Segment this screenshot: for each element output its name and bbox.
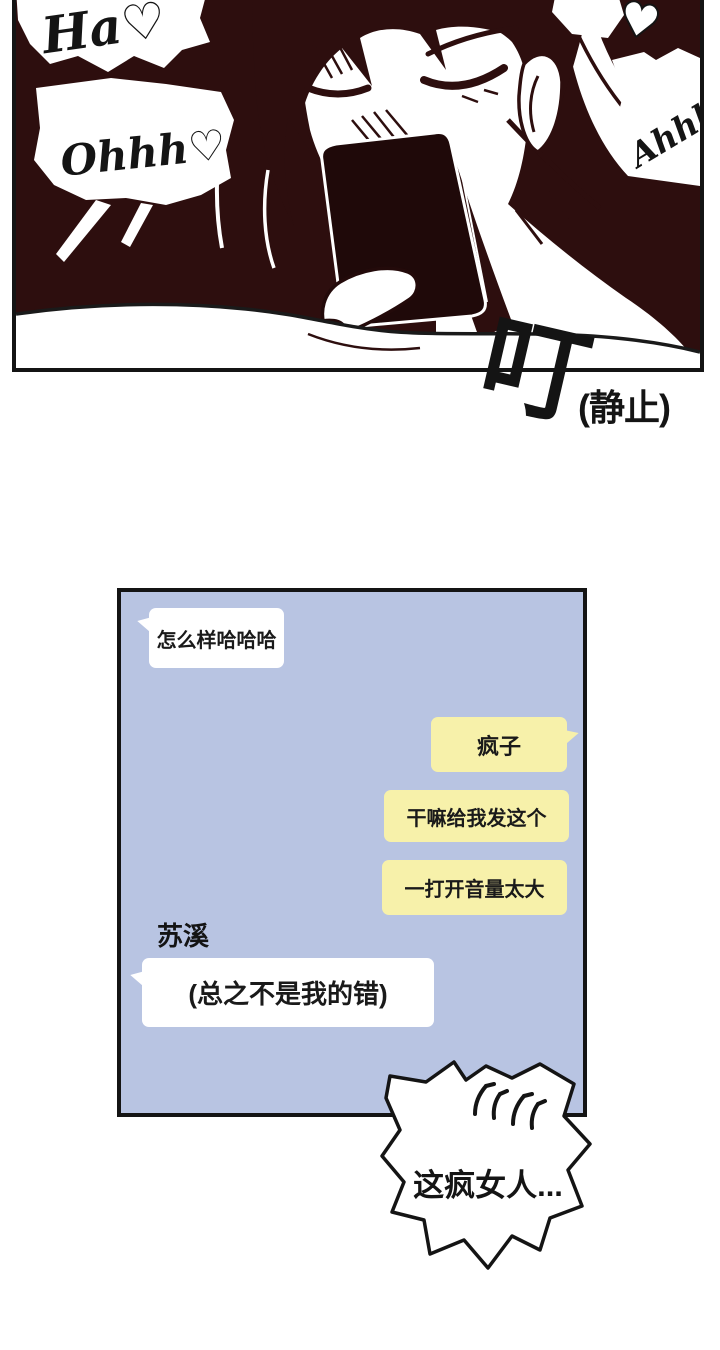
chat-bubble-outgoing-2: 干嘛给我发这个 [384, 790, 569, 842]
burst-text: 这疯女人... [413, 1168, 563, 1203]
burst-bubble: 这疯女人... [370, 1050, 610, 1290]
chat-message-text: 一打开音量太大 [405, 873, 545, 902]
chat-bubble-outgoing-3: 一打开音量太大 [382, 860, 567, 915]
chat-message-text: (总之不是我的错) [188, 974, 387, 1011]
bed-scene-panel: Ha♡ Ohhh♡ ♥ Ahhh!? [12, 0, 704, 372]
bubble-tail-right [564, 728, 580, 744]
chat-bubble-incoming-2: (总之不是我的错) [142, 958, 434, 1027]
sender-label: 苏溪 [157, 916, 209, 953]
bubble-tail-left [136, 615, 152, 632]
chat-bubble-outgoing-1: 疯子 [431, 717, 567, 772]
comic-page: Ha♡ Ohhh♡ ♥ Ahhh!? 叮 (静止) 怎么样哈哈哈 疯子 干嘛给我… [0, 0, 720, 1350]
chat-panel: 怎么样哈哈哈 疯子 干嘛给我发这个 一打开音量太大 苏溪 (总之不是我的错) [117, 588, 587, 1117]
sfx-caption: (静止) [578, 390, 670, 426]
chat-message-text: 怎么样哈哈哈 [157, 624, 277, 653]
bed-scene-art: Ha♡ Ohhh♡ ♥ Ahhh!? [16, 0, 700, 368]
bubble-tail-left [129, 969, 145, 986]
chat-message-text: 干嘛给我发这个 [407, 802, 547, 831]
chat-bubble-incoming-1: 怎么样哈哈哈 [149, 608, 284, 668]
burst-bubble-outline [382, 1062, 590, 1268]
chat-message-text: 疯子 [477, 729, 521, 761]
